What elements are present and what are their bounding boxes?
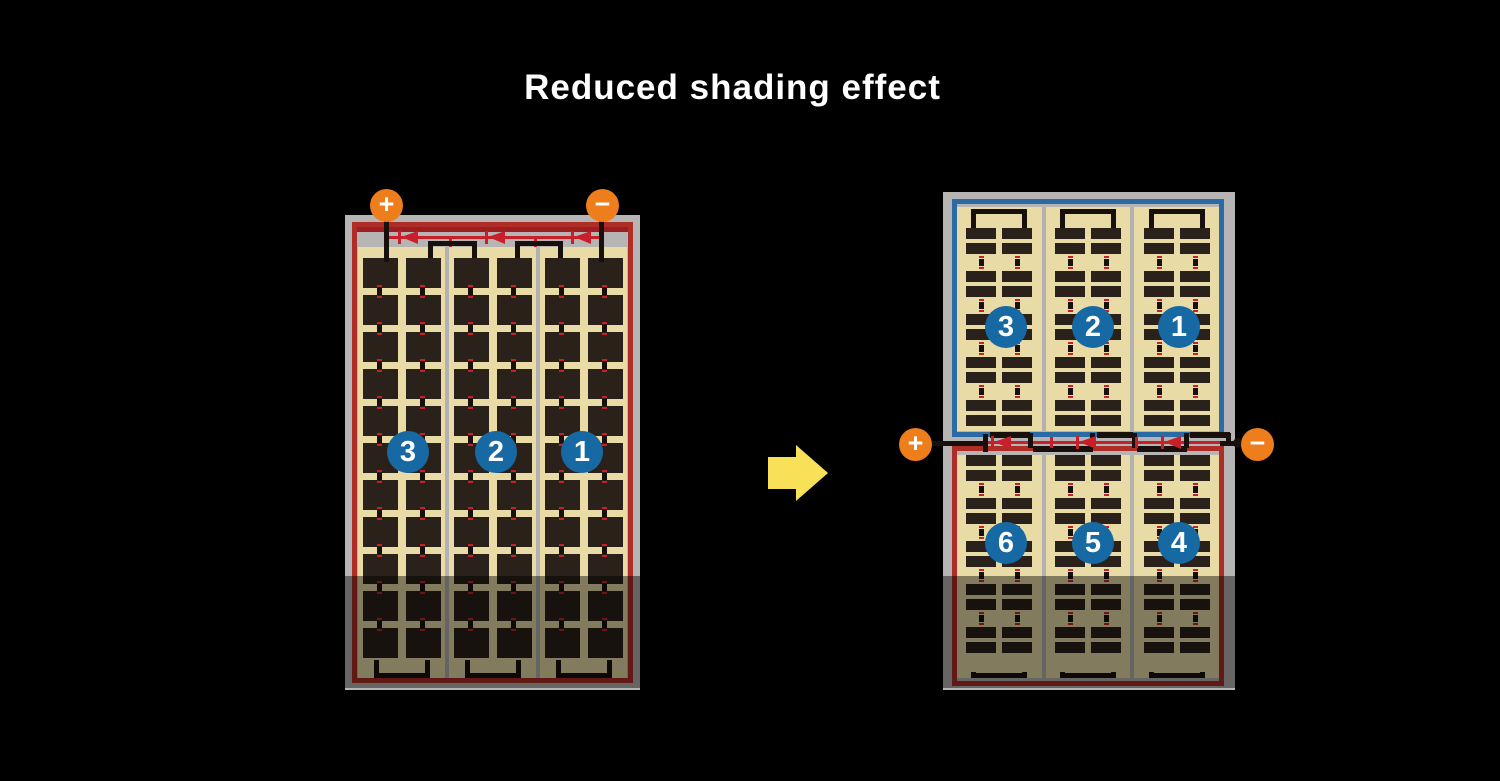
bus-joint xyxy=(1184,433,1189,448)
string-number-badge: 6 xyxy=(985,522,1027,564)
bypass-diode-icon xyxy=(485,231,506,244)
string-top-connector xyxy=(428,241,477,258)
string-number-badge: 2 xyxy=(1072,306,1114,348)
bypass-diode-icon xyxy=(571,231,592,244)
string-top-connector xyxy=(515,241,563,258)
string-number-badge: 1 xyxy=(561,431,603,473)
bus-bar xyxy=(1190,432,1230,438)
negative-lead-wire xyxy=(599,220,604,262)
transform-right-arrow-icon xyxy=(766,444,830,502)
bypass-diode-icon xyxy=(1076,436,1097,449)
right-diode-line xyxy=(988,441,1235,444)
plus-terminal-icon: + xyxy=(370,189,403,222)
string-number-badge: 1 xyxy=(1158,306,1200,348)
string-number-badge: 3 xyxy=(985,306,1027,348)
minus-terminal-icon: − xyxy=(586,189,619,222)
minus-terminal-icon: − xyxy=(1241,428,1274,461)
string-number-badge: 4 xyxy=(1158,522,1200,564)
page-title: Reduced shading effect xyxy=(0,68,1465,108)
diode-tap-wire xyxy=(1050,437,1053,448)
bus-bar xyxy=(1097,432,1133,438)
string-number-badge: 3 xyxy=(387,431,429,473)
diode-tap-wire xyxy=(1135,437,1138,448)
right-shading-overlay xyxy=(936,576,1245,688)
bypass-diode-icon xyxy=(398,231,419,244)
positive-lead-wire xyxy=(931,441,985,446)
plus-terminal-icon: + xyxy=(899,428,932,461)
bypass-diode-icon xyxy=(1161,436,1182,449)
left-shading-overlay xyxy=(339,576,654,688)
bus-joint xyxy=(1028,433,1033,448)
positive-lead-wire xyxy=(384,220,389,262)
string-number-badge: 5 xyxy=(1072,522,1114,564)
reduced-shading-infographic: Reduced shading effect + − 3 2 1 xyxy=(0,0,1500,781)
string-number-badge: 2 xyxy=(475,431,517,473)
bypass-diode-icon xyxy=(991,436,1012,449)
